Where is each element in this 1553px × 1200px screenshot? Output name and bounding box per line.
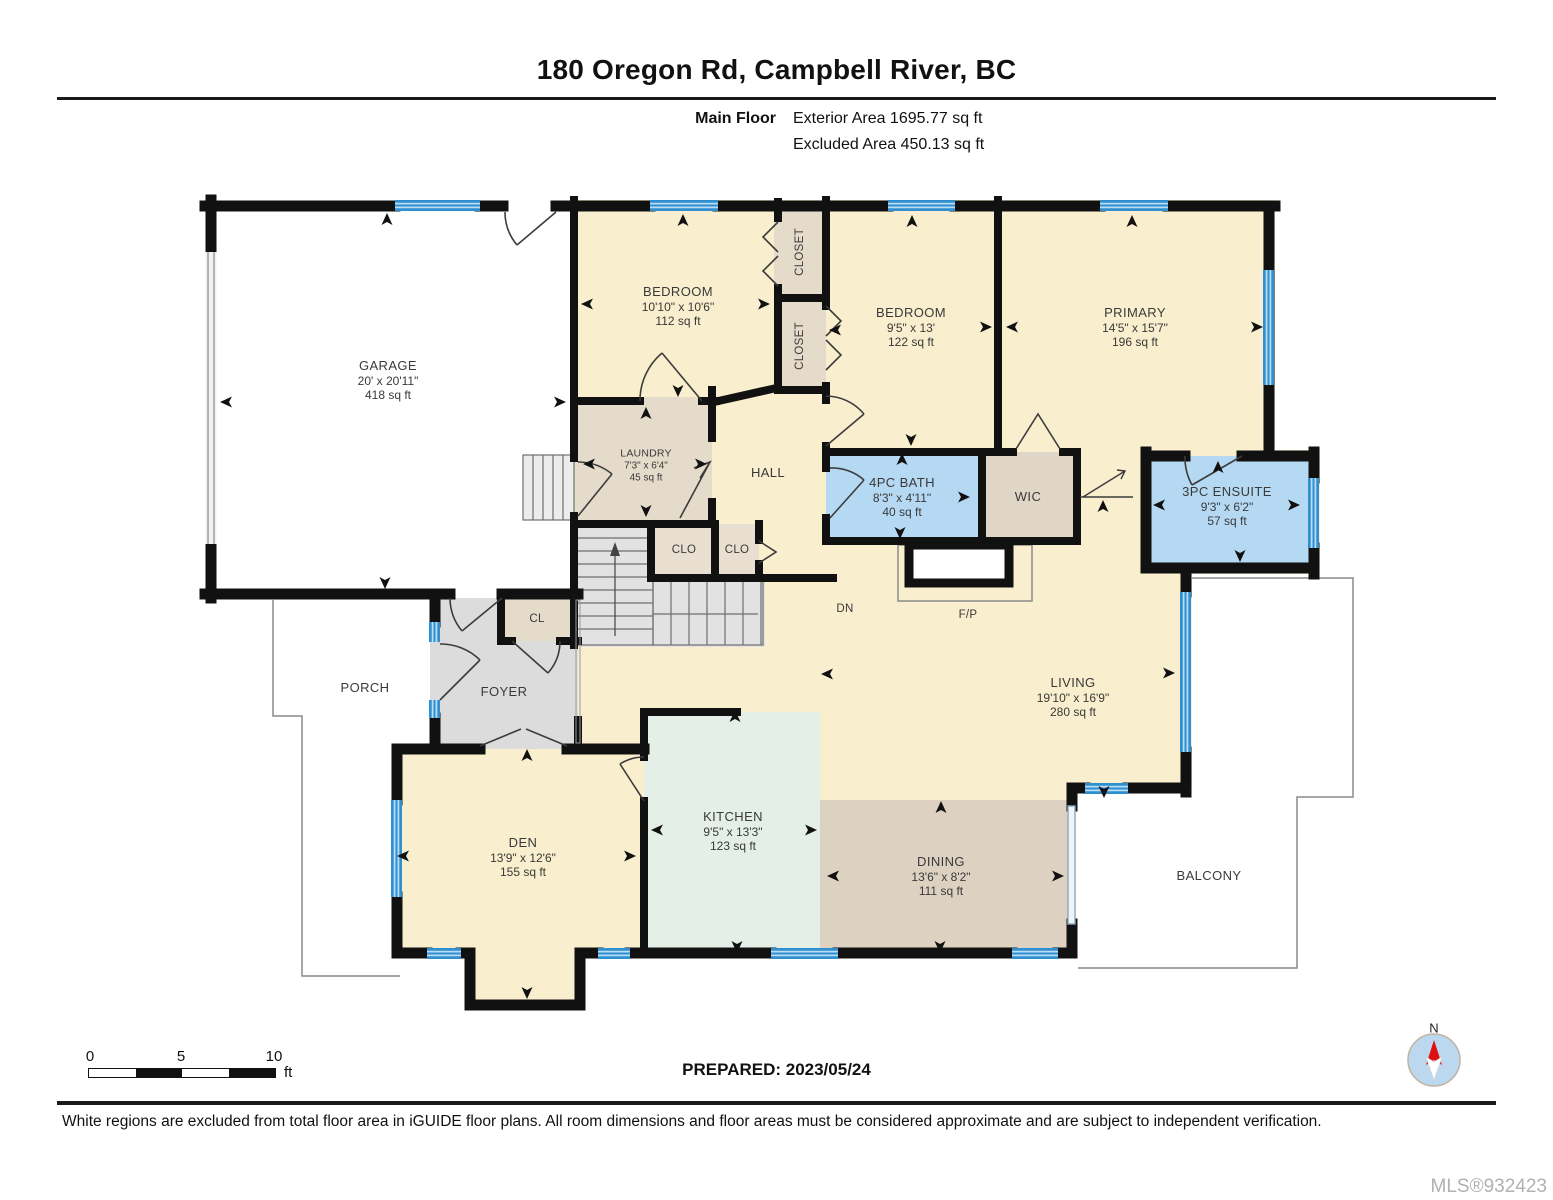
room-label-dining: DINING 13'6" x 8'2" 111 sq ft [911,854,970,898]
footer-rule [57,1101,1496,1105]
room-label-bedroom2: BEDROOM 9'5" x 13' 122 sq ft [876,305,946,349]
room-label-porch: PORCH [341,680,390,696]
room-label-bath: 4PC BATH 8'3" x 4'11" 40 sq ft [869,475,935,519]
room-label-garage: GARAGE 20' x 20'11" 418 sq ft [358,358,419,402]
floorplan-drawing [0,0,1553,1200]
room-label-den: DEN 13'9" x 12'6" 155 sq ft [490,835,556,879]
stairs-dn-label: DN [836,603,853,617]
room-label-living: LIVING 19'10" x 16'9" 280 sq ft [1037,675,1110,719]
room-label-ensuite: 3PC ENSUITE 9'3" x 6'2" 57 sq ft [1182,484,1272,528]
room-label-balcony: BALCONY [1177,868,1242,884]
stairs-exterior [523,455,574,520]
room-label-wic: WIC [1015,489,1041,505]
room-label-cl: CL [529,613,544,627]
room-label-foyer: FOYER [481,684,528,700]
compass-north-label: N [1429,1021,1438,1036]
floorplan-page: 180 Oregon Rd, Campbell River, BC Main F… [0,0,1553,1200]
disclaimer-text: White regions are excluded from total fl… [62,1113,1322,1131]
room-label-clo2: CLO [725,544,750,558]
fireplace-label: F/P [959,609,978,623]
room-label-kitchen: KITCHEN 9'5" x 13'3" 123 sq ft [703,809,763,853]
room-label-bedroom1: BEDROOM 10'10" x 10'6" 112 sq ft [642,284,715,328]
room-label-closet-bottom: CLOSET [794,322,808,370]
room-label-closet-top: CLOSET [794,228,808,276]
room-label-laundry: LAUNDRY 7'3" x 6'4" 45 sq ft [620,448,671,485]
prepared-date: PREPARED: 2023/05/24 [0,1060,1553,1080]
fireplace [909,545,1009,583]
room-label-clo1: CLO [672,544,697,558]
mls-number: MLS®932423 [1431,1176,1547,1198]
room-label-primary: PRIMARY 14'5" x 15'7" 196 sq ft [1102,305,1168,349]
room-label-hall: HALL [751,465,785,481]
